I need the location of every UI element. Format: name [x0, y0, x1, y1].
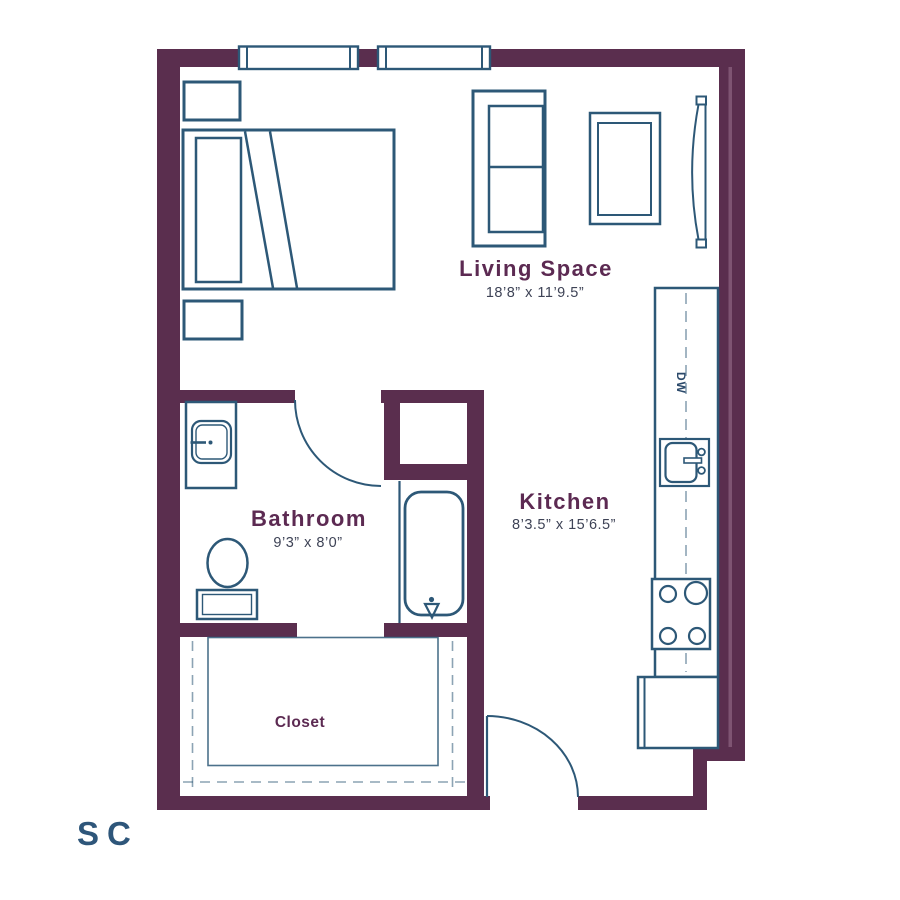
- bathroom-label: Bathroom: [251, 506, 367, 531]
- bathroom-dimensions: 9’3” x 8’0”: [273, 535, 342, 551]
- kitchen-label: Kitchen: [519, 489, 610, 514]
- wall-kitchen-divider: [467, 390, 484, 810]
- living-area: [473, 91, 706, 248]
- faucet-spout: [684, 458, 702, 463]
- wall-bottom-left-segment: [157, 796, 490, 810]
- bed-blanket-fold-2: [270, 132, 297, 289]
- window-1: [239, 47, 358, 70]
- kitchen-area: [638, 288, 718, 748]
- floor-plan-drawing: Living Space 18’8” x 11’9.5” Kitchen 8’3…: [0, 0, 900, 900]
- bathroom-door-swing: [295, 400, 381, 486]
- wall-left: [157, 49, 180, 810]
- vanity-faucet-knob: [209, 441, 213, 445]
- living-space-label: Living Space: [459, 256, 613, 281]
- floor-plan-page: Living Space 18’8” x 11’9.5” Kitchen 8’3…: [0, 0, 900, 900]
- nightstand-top: [184, 82, 240, 120]
- sleeping-area: [183, 82, 394, 339]
- living-space-dimensions: 18’8” x 11’9.5”: [486, 285, 584, 301]
- window-2: [378, 47, 490, 70]
- dishwasher-label: DW: [674, 372, 688, 394]
- refrigerator: [638, 677, 718, 748]
- kitchen-dimensions: 8’3.5” x 15’6.5”: [512, 517, 616, 533]
- stove: [652, 579, 710, 649]
- nightstand-bottom: [184, 301, 242, 339]
- entry-door-swing: [487, 716, 578, 797]
- sofa: [473, 91, 545, 246]
- faucet-handle-2: [698, 467, 705, 474]
- wall-niche-bottom: [384, 464, 484, 480]
- wall-tub-bottom: [384, 623, 484, 637]
- tub-drain-dot: [429, 597, 434, 602]
- bathroom-vanity-sink: [186, 402, 236, 488]
- tv: [692, 97, 706, 248]
- wall-bottom-right-segment: [578, 796, 707, 810]
- closet-label: Closet: [275, 714, 325, 731]
- faucet-handle-1: [698, 449, 705, 456]
- kitchen-sink: [660, 439, 709, 486]
- closet-shelf: [208, 638, 438, 766]
- wall-right-accent-stripe: [729, 67, 733, 747]
- bed-pillow: [196, 138, 241, 282]
- bed-blanket-fold-1: [245, 132, 273, 289]
- brand-logo: SC: [77, 815, 139, 852]
- coffee-table: [590, 113, 660, 224]
- doors: [295, 400, 578, 797]
- toilet-bowl: [208, 539, 248, 587]
- toilet: [197, 539, 257, 619]
- bathtub: [400, 481, 464, 623]
- bed: [183, 130, 394, 289]
- wall-closet-top: [170, 623, 297, 637]
